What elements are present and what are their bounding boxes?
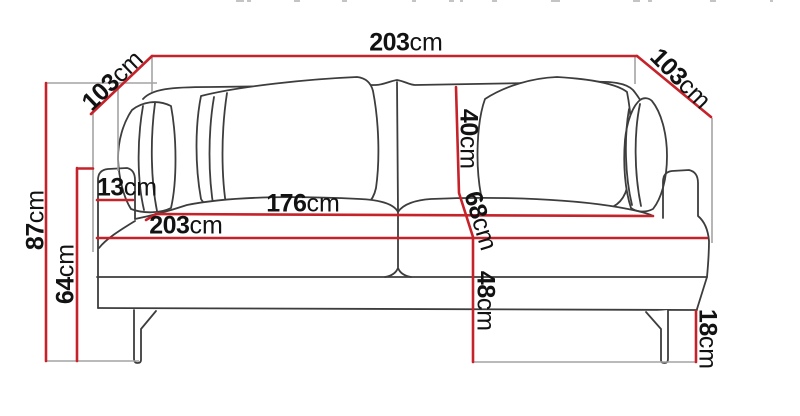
right-back-pillow: [478, 77, 632, 212]
dim-front-width: 203cm: [149, 212, 223, 241]
dim-unit: cm: [694, 336, 722, 369]
dim-value: 203: [369, 29, 409, 57]
dim-value: 13: [97, 174, 124, 202]
left-leg: [134, 310, 156, 363]
dim-unit: cm: [472, 298, 500, 331]
dim-value: 40: [455, 109, 483, 136]
dim-unit: cm: [52, 244, 80, 277]
dim-unit: cm: [455, 136, 483, 169]
sofa-dimension-diagram: 203cm 103cm 103cm 87cm 64cm 13cm 176cm 2…: [0, 0, 800, 416]
backrest-seam: [397, 82, 398, 210]
dim-armrest-width: 13cm: [97, 174, 157, 203]
dim-leg-height: 18cm: [693, 309, 722, 369]
dim-value: 176: [266, 190, 306, 218]
dim-value: 203: [149, 212, 189, 240]
dim-value: 87: [22, 223, 50, 250]
dim-value: 64: [52, 277, 80, 304]
dim-unit: cm: [189, 212, 222, 240]
right-armrest: [663, 170, 709, 309]
dim-value: 48: [472, 271, 500, 298]
dim-back-cushion-height: 40cm: [454, 109, 483, 169]
dim-unit: cm: [124, 174, 157, 202]
cropped-text-artifact: [236, 0, 773, 2]
dim-value: 18: [694, 309, 722, 336]
dim-armrest-height: 64cm: [52, 244, 81, 304]
dim-overall-height: 87cm: [22, 190, 51, 250]
right-accent-pillow: [624, 98, 667, 211]
right-leg: [646, 310, 668, 363]
dim-seat-height: 48cm: [471, 271, 500, 331]
dim-overall-width-top: 203cm: [369, 29, 443, 58]
dim-seat-width: 176cm: [266, 190, 340, 219]
dim-unit: cm: [409, 29, 442, 57]
dim-unit: cm: [22, 190, 50, 223]
dim-unit: cm: [306, 190, 339, 218]
sofa-base: [97, 277, 707, 310]
